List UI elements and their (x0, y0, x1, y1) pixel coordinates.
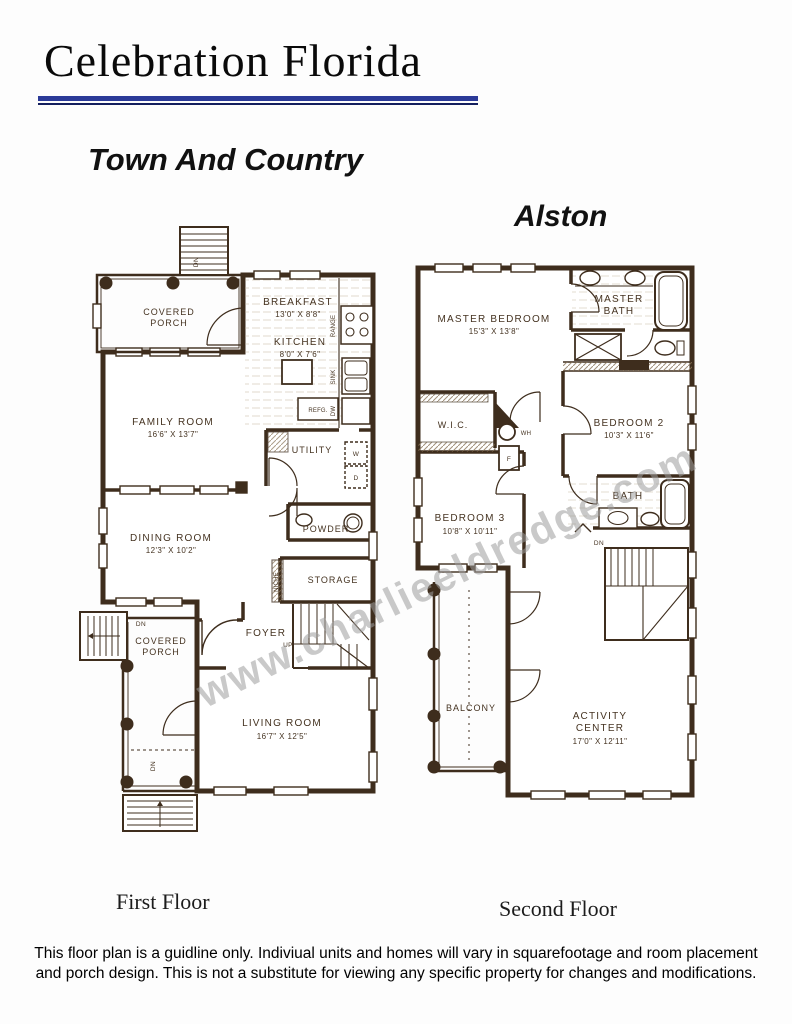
svg-text:PORCH: PORCH (142, 647, 180, 657)
toilet-icon (641, 513, 659, 526)
ff-covered-porch-top-label: COVERED (143, 307, 195, 317)
sf-bath-label: BATH (613, 491, 644, 502)
second-floor-caption: Second Floor (499, 896, 617, 922)
ff-washer-label: W (353, 451, 360, 458)
balcony-column (428, 584, 440, 596)
ff-kitchen-label: KITCHEN (274, 337, 326, 348)
sf-activity-center-label: ACTIVITY (573, 711, 628, 722)
sf-wh-label: WH (521, 431, 531, 437)
ff-dining-room-label: DINING ROOM (130, 533, 212, 544)
ff-up-label: UP (283, 642, 293, 649)
ff-dn-porch-label: DN (150, 761, 157, 771)
second-floor-plan: MASTER BEDROOM 15'3" X 13'8" MASTER BATH… (403, 256, 703, 811)
porch-column (180, 776, 192, 788)
water-heater-icon (499, 424, 515, 440)
porch-column (121, 718, 133, 730)
porch-column (227, 277, 239, 289)
kitchen-island (282, 360, 312, 384)
sf-bedroom2-dims: 10'3" X 11'6" (604, 431, 654, 440)
ff-refg-label: REFG. (308, 408, 327, 414)
ff-breakfast-dims: 13'0" X 8'8" (275, 310, 321, 319)
sf-master-bedroom-label: MASTER BEDROOM (438, 314, 551, 325)
ff-living-room-label: LIVING ROOM (242, 718, 322, 729)
ff-dn-left-label: DN (136, 621, 146, 628)
porch-column (167, 277, 179, 289)
toilet-icon (655, 341, 675, 355)
title-underline (38, 96, 478, 105)
ff-stairs-top (180, 227, 228, 275)
sf-activity-center-dims: 17'0" X 12'11" (573, 737, 628, 746)
model-name: Alston (514, 200, 607, 234)
ff-dining-room-dims: 12'3" X 10'2" (146, 546, 196, 555)
sf-bedroom2-label: BEDROOM 2 (594, 418, 665, 429)
porch-column (100, 277, 112, 289)
disclaimer-line2: and porch design. This is not a substitu… (0, 964, 792, 984)
ff-dryer-label: D (353, 475, 358, 482)
ff-range-label: RANGE (331, 315, 337, 337)
sf-master-bath-label: MASTER (595, 294, 644, 305)
sf-balcony-label: BALCONY (446, 703, 496, 713)
sf-furnace-label: F (507, 456, 511, 463)
sf-bedroom3-dims: 10'8" X 10'11" (443, 527, 498, 536)
ff-breakfast-label: BREAKFAST (263, 297, 333, 308)
dishwasher-icon (342, 398, 370, 424)
ff-covered-porch-bottom-label: COVERED (135, 636, 187, 646)
sink-icon (580, 271, 600, 285)
balcony-column (494, 761, 506, 773)
ff-powder-label: POWDER (303, 524, 350, 534)
ff-stairs-bottom (123, 795, 197, 831)
community-name: Town And Country (88, 142, 363, 178)
page-title: Celebration Florida (44, 34, 422, 87)
ff-dn-top-label: DN (193, 257, 200, 267)
first-floor-plan: COVERED PORCH BREAKFAST 13'0" X 8'8" KIT… (76, 220, 386, 850)
ff-living-room-dims: 16'7" X 12'5" (257, 732, 307, 741)
ff-utility-label: UTILITY (292, 445, 333, 455)
porch-column (121, 776, 133, 788)
title-underline-thick (38, 96, 478, 101)
svg-text:CENTER: CENTER (576, 723, 624, 734)
balcony-column (428, 710, 440, 722)
floor-plan-flyer: Celebration Florida Town And Country Als… (0, 0, 792, 1024)
ff-foyer-label: FOYER (246, 628, 286, 639)
ff-sink-label: SINK (331, 370, 337, 385)
ff-kitchen-dims: 8'0" X 7'6" (280, 350, 321, 359)
svg-text:BATH: BATH (604, 306, 635, 317)
svg-text:PORCH: PORCH (150, 318, 188, 328)
ff-stairs-left (80, 612, 127, 660)
sf-bedroom3-label: BEDROOM 3 (435, 513, 506, 524)
disclaimer: This floor plan is a guidline only. Indi… (0, 944, 792, 984)
sink-icon (608, 512, 628, 525)
ff-dw-label: DW (331, 406, 337, 417)
ff-family-room-label: FAMILY ROOM (132, 417, 214, 428)
balcony-column (428, 648, 440, 660)
ff-storage-label: STORAGE (308, 575, 359, 585)
sf-wic-label: W.I.C. (438, 420, 469, 430)
sink-icon (625, 271, 645, 285)
title-underline-thin (38, 103, 478, 105)
porch-column (121, 660, 133, 672)
balcony-column (428, 761, 440, 773)
sf-master-bedroom-dims: 15'3" X 13'8" (469, 327, 519, 336)
disclaimer-line1: This floor plan is a guidline only. Indi… (0, 944, 792, 964)
range-icon (341, 306, 373, 344)
ff-niche-label: NICHE (274, 572, 280, 592)
sf-dn-label: DN (594, 540, 604, 547)
sf-balcony (428, 582, 508, 773)
ff-family-room-dims: 16'6" X 13'7" (148, 430, 198, 439)
first-floor-caption: First Floor (116, 889, 210, 915)
sf-stairs-down (605, 548, 688, 640)
